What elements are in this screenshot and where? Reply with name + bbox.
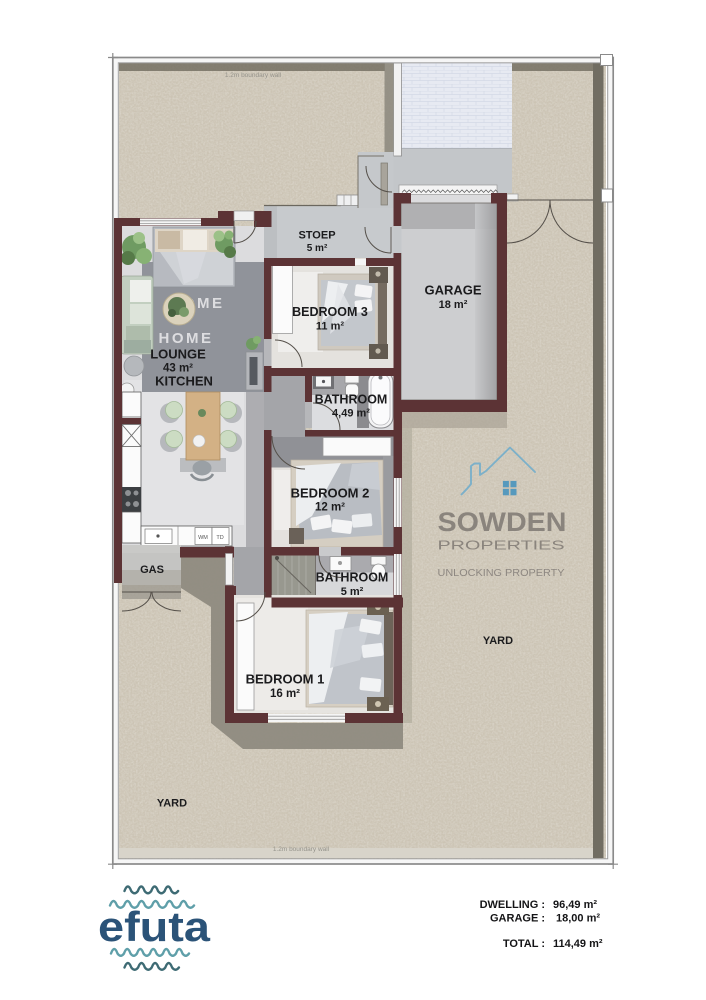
svg-text:efuta: efuta bbox=[98, 903, 211, 950]
svg-text:TD: TD bbox=[216, 535, 223, 541]
svg-text:STOEP: STOEP bbox=[298, 230, 335, 242]
svg-text:18,00 m²: 18,00 m² bbox=[556, 913, 600, 925]
svg-text:GAS: GAS bbox=[140, 564, 164, 576]
svg-text:BATHROOM: BATHROOM bbox=[316, 571, 389, 585]
svg-text:1.2m boundary wall: 1.2m boundary wall bbox=[273, 846, 330, 853]
svg-text:5 m²: 5 m² bbox=[307, 243, 328, 254]
svg-text:YARD: YARD bbox=[483, 635, 513, 647]
svg-text:UNLOCKING PROPERTY: UNLOCKING PROPERTY bbox=[438, 567, 565, 579]
svg-text:12 m²: 12 m² bbox=[315, 502, 345, 514]
svg-text:114,49 m²: 114,49 m² bbox=[553, 938, 603, 950]
svg-text:YARD: YARD bbox=[157, 798, 187, 810]
svg-text:GARAGE: GARAGE bbox=[424, 283, 481, 298]
svg-text:BEDROOM 1: BEDROOM 1 bbox=[246, 672, 325, 687]
svg-text:HOME: HOME bbox=[159, 330, 214, 347]
svg-text:SOWDEN: SOWDEN bbox=[438, 507, 567, 537]
svg-text:TOTAL :: TOTAL : bbox=[503, 938, 545, 950]
svg-text:1.2m boundary wall: 1.2m boundary wall bbox=[225, 72, 282, 79]
svg-text:4,49 m²: 4,49 m² bbox=[332, 408, 370, 420]
svg-text:DWELLING :: DWELLING : bbox=[480, 899, 545, 911]
svg-text:PROPERTIES: PROPERTIES bbox=[438, 538, 565, 553]
svg-text:16 m²: 16 m² bbox=[270, 688, 300, 700]
svg-text:KITCHEN: KITCHEN bbox=[155, 374, 213, 389]
svg-text:BEDROOM 3: BEDROOM 3 bbox=[292, 305, 368, 319]
svg-text:LOUNGE: LOUNGE bbox=[150, 347, 206, 362]
svg-text:96,49 m²: 96,49 m² bbox=[553, 899, 597, 911]
svg-text:BATHROOM: BATHROOM bbox=[315, 393, 388, 407]
svg-text:WM: WM bbox=[198, 535, 208, 541]
svg-text:11 m²: 11 m² bbox=[316, 321, 344, 333]
svg-text:GARAGE :: GARAGE : bbox=[490, 913, 545, 925]
svg-text:5 m²: 5 m² bbox=[341, 586, 364, 598]
svg-text:BEDROOM 2: BEDROOM 2 bbox=[291, 486, 370, 501]
svg-text:18 m²: 18 m² bbox=[439, 299, 468, 311]
